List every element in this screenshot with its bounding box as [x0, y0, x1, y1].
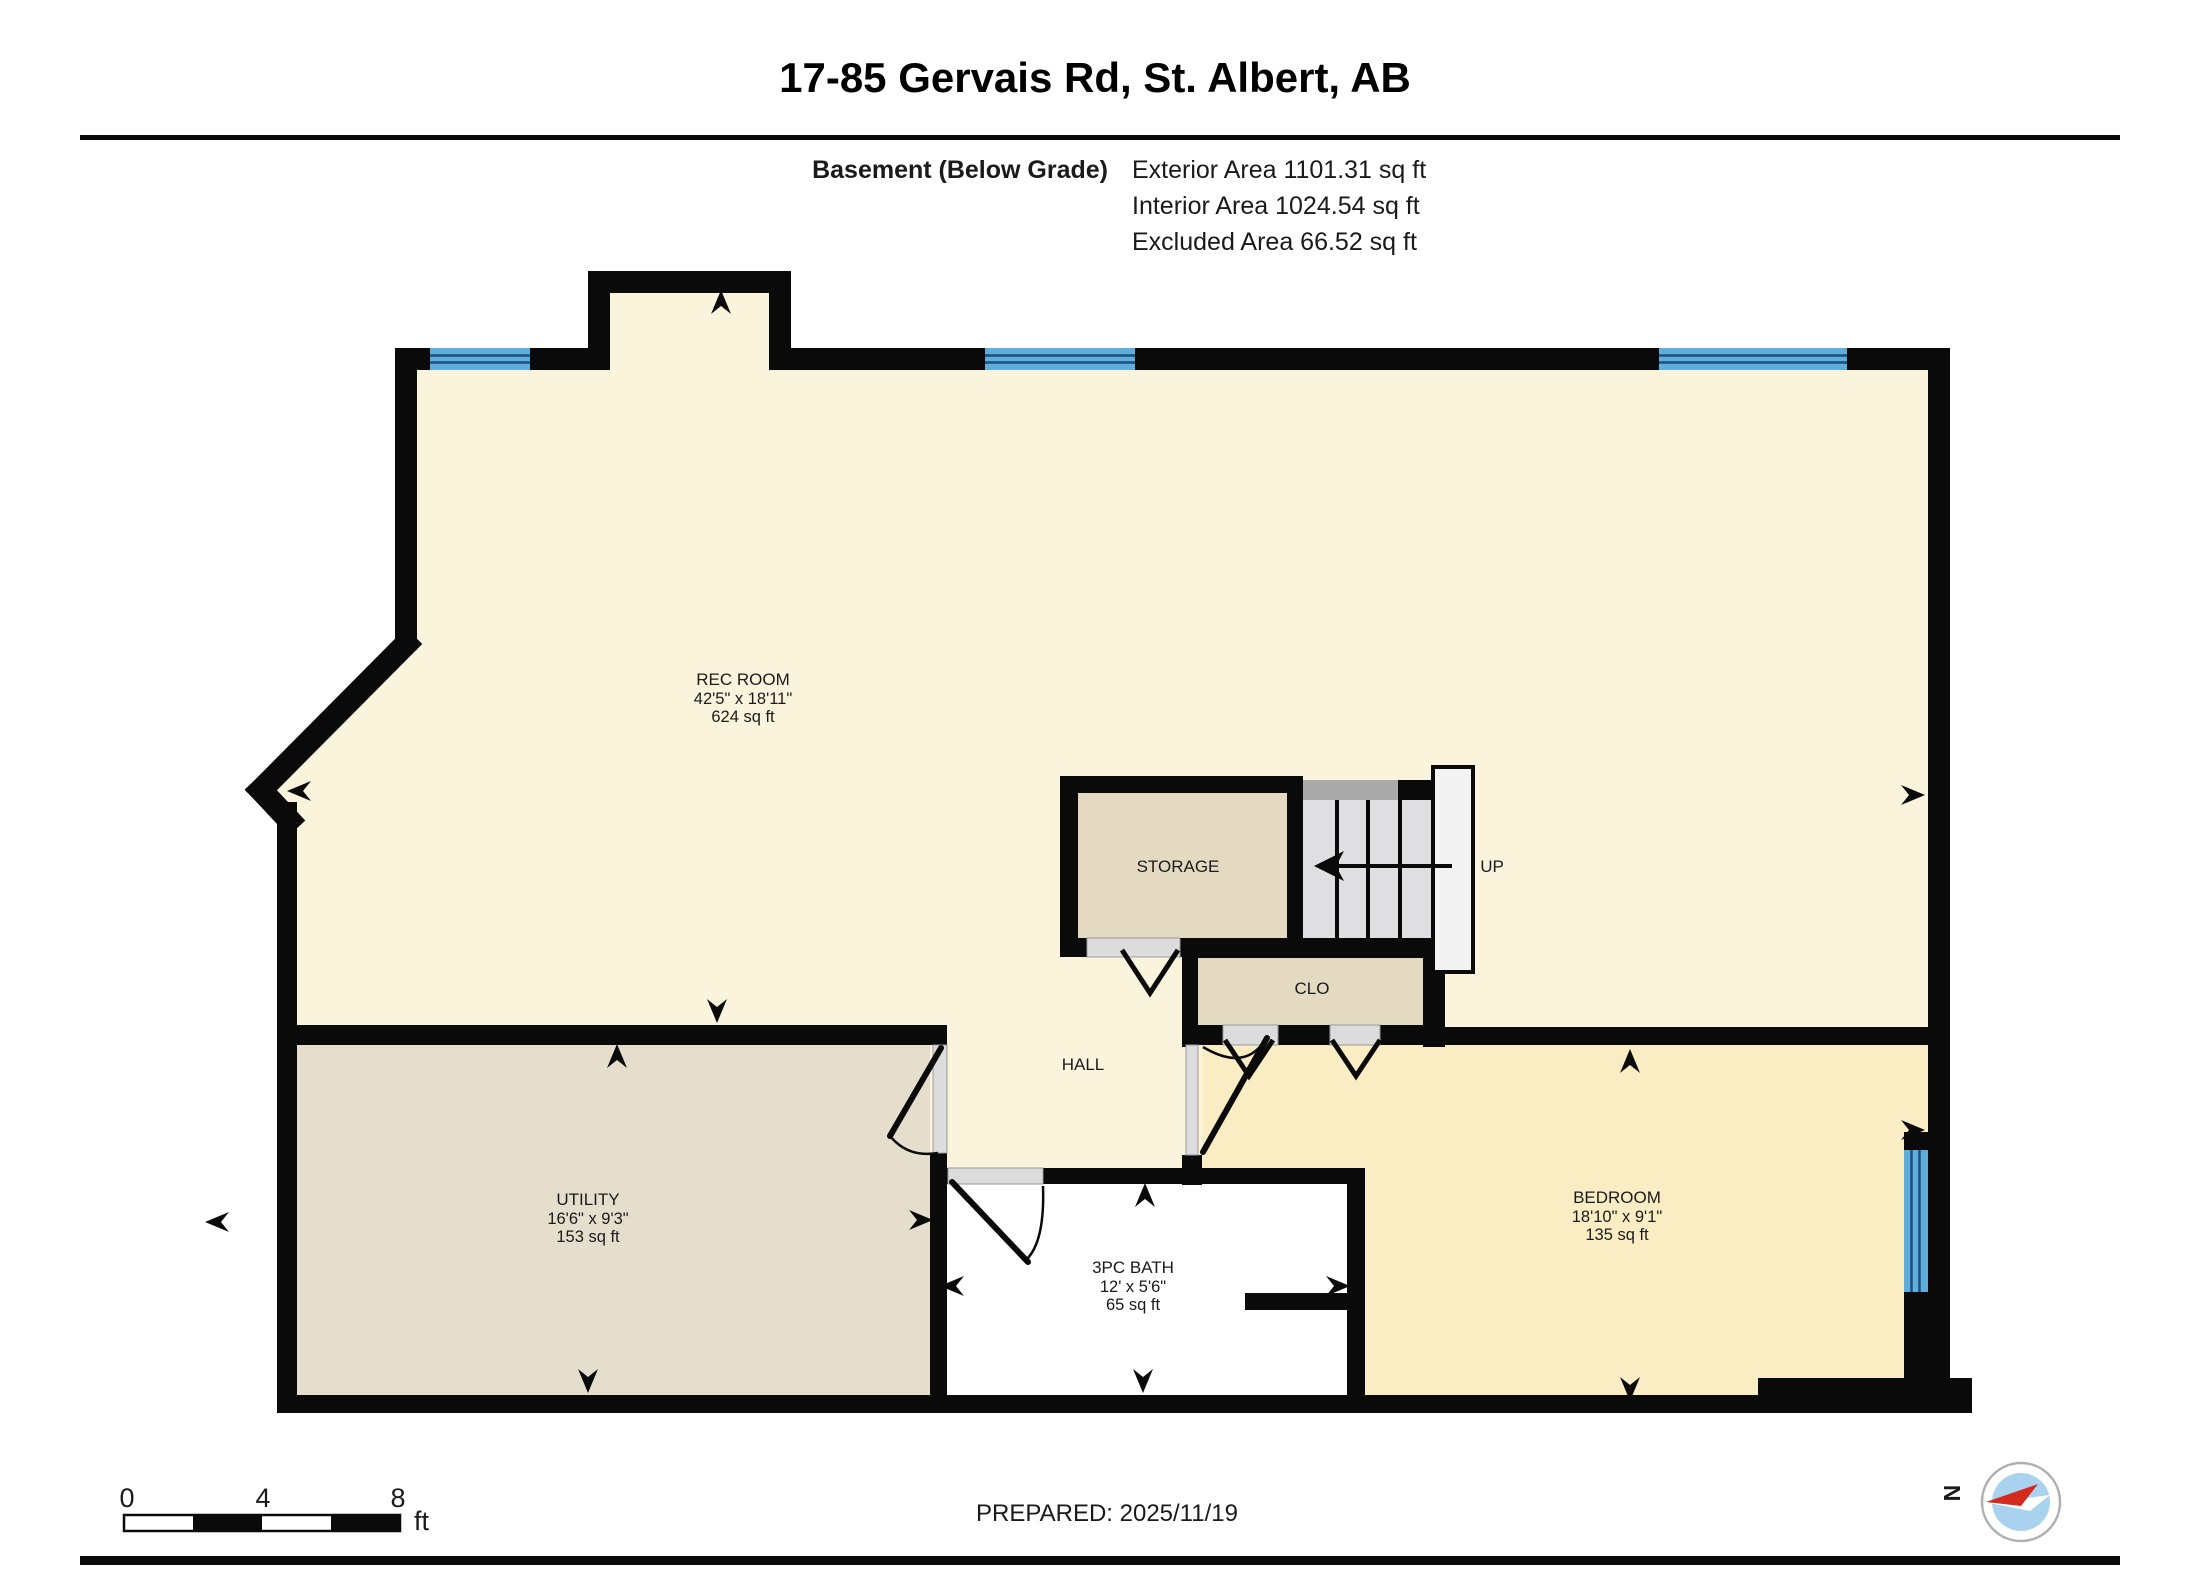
compass: N [1939, 1463, 2060, 1541]
storage-label: STORAGE [1137, 857, 1220, 876]
scale-bar-segment [331, 1515, 400, 1531]
wall-bath-right [1347, 1168, 1365, 1397]
prepared-date: PREPARED: 2025/11/19 [976, 1500, 1238, 1527]
bath-label: 3PC BATH [1092, 1258, 1174, 1277]
utility-label: UTILITY [556, 1190, 619, 1209]
scale-tick-0: 0 [119, 1483, 134, 1513]
closet-label: CLO [1295, 979, 1330, 998]
floor-plan-canvas: 17-85 Gervais Rd, St. Albert, AB Basemen… [0, 0, 2200, 1571]
bath-dims: 12' x 5'6" [1100, 1278, 1166, 1296]
window-bedroom-right [1904, 1150, 1928, 1292]
excluded-area-stat: Excluded Area 66.52 sq ft [1132, 228, 1417, 256]
rec-room-dims: 42'5" x 18'11" [694, 690, 793, 708]
wall-bump-left [588, 271, 610, 350]
scale-unit-label: ft [414, 1506, 430, 1536]
wall-right [1928, 348, 1950, 1413]
window-top-center [985, 348, 1135, 370]
rec-room-label: REC ROOM [696, 670, 790, 689]
scale-bar-segment [193, 1515, 262, 1531]
floor-label: Basement (Below Grade) [812, 156, 1108, 184]
wall-hall-stub [1182, 1155, 1202, 1185]
wall-closet-bottom [1182, 1025, 1445, 1045]
wall-left-upper [395, 348, 417, 650]
staircase [1303, 780, 1440, 938]
utility-area: 153 sq ft [556, 1228, 620, 1246]
footer-divider [80, 1556, 2120, 1565]
bedroom-area: 135 sq ft [1585, 1226, 1649, 1244]
wall-left-lower [277, 802, 297, 1413]
wall-utility-right [930, 1153, 947, 1395]
wall-utility-top [277, 1025, 947, 1045]
bedroom-door-opening [1186, 1045, 1198, 1155]
hall-label: HALL [1062, 1055, 1105, 1074]
scale-bar: 0 4 8 ft [119, 1483, 429, 1536]
utility-dims: 16'6" x 9'3" [547, 1210, 628, 1228]
bath-door-opening [948, 1168, 1043, 1184]
wall-storage-left [1060, 776, 1078, 957]
stair-landing [1433, 767, 1473, 972]
stairs-up-label: UP [1480, 857, 1504, 876]
exterior-area-stat: Exterior Area 1101.31 sq ft [1132, 156, 1426, 184]
storage-door-opening [1087, 938, 1180, 957]
wall-storage-right [1287, 776, 1303, 957]
bedroom-label: BEDROOM [1573, 1188, 1661, 1207]
rec-room-area: 624 sq ft [711, 708, 775, 726]
wall-bottom [277, 1395, 1972, 1413]
wall-right-lower-thick [1904, 1292, 1950, 1413]
wall-bedroom-top [1443, 1027, 1950, 1045]
bath-area: 65 sq ft [1106, 1296, 1161, 1314]
header-divider [80, 135, 2120, 140]
bath-fixture [1245, 1293, 1347, 1310]
bedroom-dims: 18'10" x 9'1" [1572, 1208, 1663, 1226]
interior-area-stat: Interior Area 1024.54 sq ft [1132, 192, 1420, 220]
bump-out-floor [610, 293, 769, 373]
closet-door-opening-right [1330, 1025, 1380, 1045]
direction-arrow-icon [205, 1212, 229, 1232]
room-fills [273, 293, 1928, 1395]
scale-tick-4: 4 [255, 1483, 270, 1513]
window-top-right [1659, 348, 1847, 370]
scale-tick-8: 8 [390, 1483, 405, 1513]
wall-bump-right [769, 271, 791, 350]
north-label: N [1939, 1485, 1965, 1502]
wall-bump-top [588, 271, 791, 293]
window-top-left [430, 348, 530, 370]
page-title: 17-85 Gervais Rd, St. Albert, AB [779, 54, 1411, 101]
wall-storage-top [1060, 776, 1303, 793]
stairs-top-band [1303, 780, 1398, 800]
floor-plan-page: 17-85 Gervais Rd, St. Albert, AB Basemen… [0, 0, 2200, 1571]
